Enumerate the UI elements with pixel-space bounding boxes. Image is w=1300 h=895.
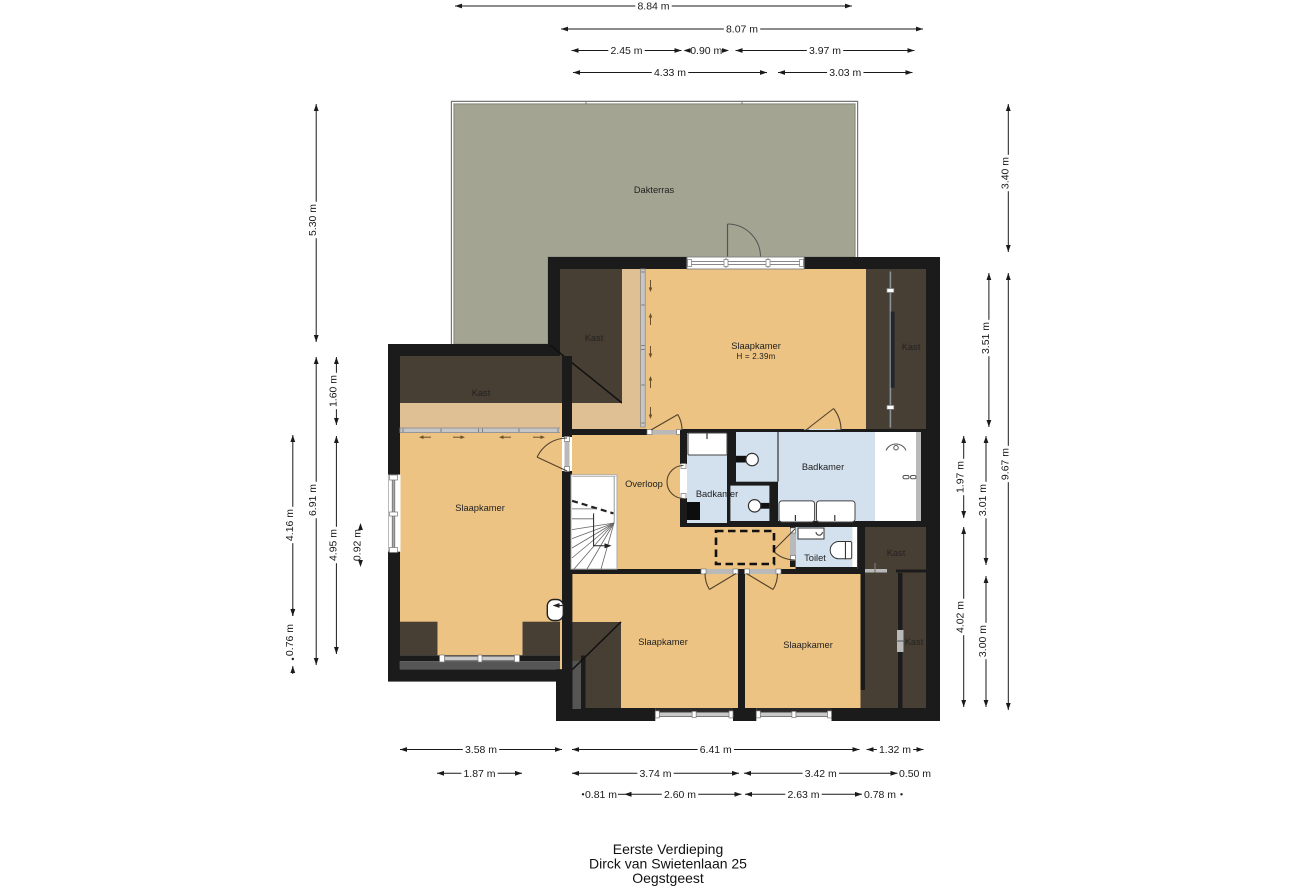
svg-text:3.97 m: 3.97 m bbox=[809, 45, 841, 57]
svg-text:Toilet: Toilet bbox=[804, 553, 826, 563]
svg-text:6.41 m: 6.41 m bbox=[700, 744, 732, 756]
svg-text:3.00 m: 3.00 m bbox=[977, 625, 989, 657]
svg-text:Kast: Kast bbox=[585, 333, 604, 343]
svg-text:Kast: Kast bbox=[905, 637, 924, 647]
svg-text:9.67 m: 9.67 m bbox=[999, 448, 1011, 480]
svg-text:4.33 m: 4.33 m bbox=[654, 67, 686, 79]
svg-text:2.45 m: 2.45 m bbox=[610, 45, 642, 57]
svg-text:1.60 m: 1.60 m bbox=[327, 375, 339, 407]
svg-text:3.51 m: 3.51 m bbox=[980, 322, 992, 354]
svg-text:3.03 m: 3.03 m bbox=[829, 67, 861, 79]
svg-text:1.32 m: 1.32 m bbox=[879, 744, 911, 756]
svg-text:Badkamer: Badkamer bbox=[802, 462, 844, 472]
svg-text:2.63 m: 2.63 m bbox=[787, 789, 819, 801]
svg-text:0.92 m: 0.92 m bbox=[352, 529, 364, 561]
svg-text:6.91 m: 6.91 m bbox=[307, 484, 319, 516]
svg-text:8.07 m: 8.07 m bbox=[726, 24, 758, 36]
svg-text:3.58 m: 3.58 m bbox=[465, 744, 497, 756]
svg-text:1.87 m: 1.87 m bbox=[463, 768, 495, 780]
svg-text:3.74 m: 3.74 m bbox=[639, 768, 671, 780]
svg-text:Badkamer: Badkamer bbox=[696, 489, 738, 499]
svg-text:3.42 m: 3.42 m bbox=[805, 768, 837, 780]
svg-text:Kast: Kast bbox=[902, 342, 921, 352]
svg-text:4.95 m: 4.95 m bbox=[327, 529, 339, 561]
svg-text:Oegstgeest: Oegstgeest bbox=[632, 870, 704, 886]
svg-text:0.78 m: 0.78 m bbox=[864, 789, 896, 801]
svg-text:Overloop: Overloop bbox=[625, 479, 663, 489]
svg-text:Kast: Kast bbox=[472, 388, 491, 398]
svg-text:4.02 m: 4.02 m bbox=[955, 601, 967, 633]
svg-text:Slaapkamer: Slaapkamer bbox=[783, 640, 833, 650]
svg-text:5.30 m: 5.30 m bbox=[307, 204, 319, 236]
svg-text:3.01 m: 3.01 m bbox=[977, 484, 989, 516]
svg-text:Dakterras: Dakterras bbox=[634, 185, 675, 195]
svg-text:2.60 m: 2.60 m bbox=[664, 789, 696, 801]
svg-text:4.16 m: 4.16 m bbox=[284, 509, 296, 541]
svg-text:Slaapkamer: Slaapkamer bbox=[638, 637, 688, 647]
svg-text:0.50 m: 0.50 m bbox=[899, 768, 931, 780]
svg-text:Kast: Kast bbox=[887, 548, 906, 558]
svg-text:Slaapkamer: Slaapkamer bbox=[455, 503, 505, 513]
svg-text:Slaapkamer: Slaapkamer bbox=[731, 341, 781, 351]
svg-text:0.81 m: 0.81 m bbox=[585, 789, 617, 801]
svg-text:3.40 m: 3.40 m bbox=[999, 157, 1011, 189]
svg-text:H = 2.39m: H = 2.39m bbox=[737, 352, 776, 361]
svg-text:0.76 m: 0.76 m bbox=[284, 624, 296, 656]
svg-text:0.90 m: 0.90 m bbox=[690, 45, 722, 57]
svg-text:8.84 m: 8.84 m bbox=[637, 1, 669, 13]
svg-text:1.97 m: 1.97 m bbox=[955, 461, 967, 493]
